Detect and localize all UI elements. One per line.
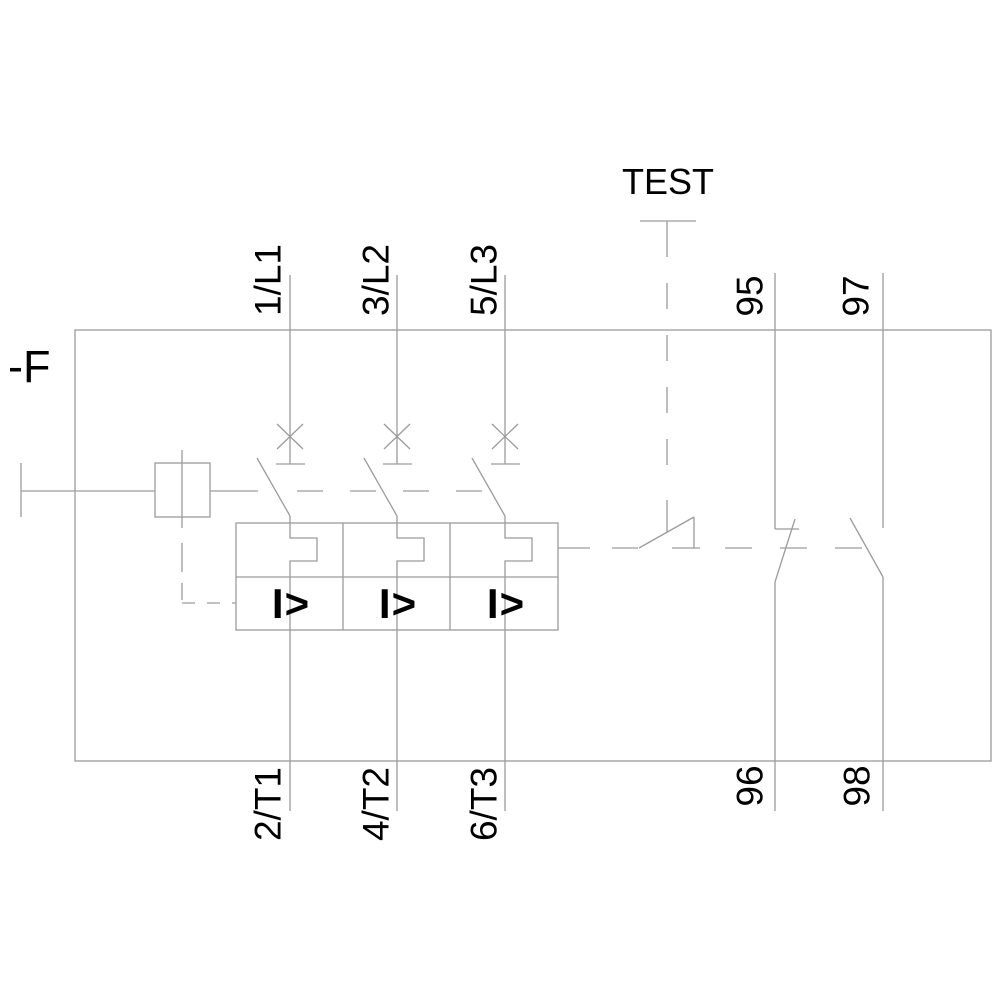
terminal-label-3L2: 3/L2: [358, 244, 395, 316]
enclosure-outline: [75, 330, 991, 761]
pole-1: [257, 275, 317, 811]
pole-1-contact-blade: [257, 458, 290, 516]
circuit-breaker-schematic: -F TEST 1/L1 3/L2 5/L3 95 97 2/T1 4/T2 6…: [0, 0, 1000, 1000]
pole-3-thermal-heater-symbol: [505, 523, 532, 577]
device-designation-label: -F: [8, 344, 50, 389]
terminal-label-1L1: 1/L1: [250, 244, 287, 316]
terminal-label-5L3: 5/L3: [466, 244, 503, 316]
pole-2-thermal-heater-symbol: [397, 523, 424, 577]
terminal-label-97: 97: [838, 275, 875, 316]
trip-contact: [558, 517, 862, 548]
pole-1-thermal-heater-symbol: [290, 523, 317, 577]
terminal-label-98: 98: [839, 765, 876, 806]
test-label: TEST: [622, 164, 714, 200]
terminal-label-95: 95: [732, 275, 769, 316]
overload-threshold-label-2: I>: [379, 583, 417, 625]
terminal-label-2T1: 2/T1: [250, 767, 287, 841]
pole-3: [472, 275, 532, 811]
overload-threshold-label-1: I>: [272, 583, 310, 625]
pole-2-contact-blade: [364, 458, 397, 516]
nc-contact-95-96: [775, 273, 799, 811]
pole-3-contact-blade: [472, 458, 505, 516]
terminal-label-96: 96: [732, 765, 769, 806]
terminal-label-6T3: 6/T3: [466, 767, 503, 841]
test-button-linkage: [640, 221, 696, 532]
overload-threshold-label-3: I>: [487, 583, 525, 625]
schematic-linework: [0, 0, 1000, 1000]
no-contact-97-98: [850, 273, 883, 811]
pole-2: [364, 275, 424, 811]
terminal-label-4T2: 4/T2: [358, 767, 395, 841]
